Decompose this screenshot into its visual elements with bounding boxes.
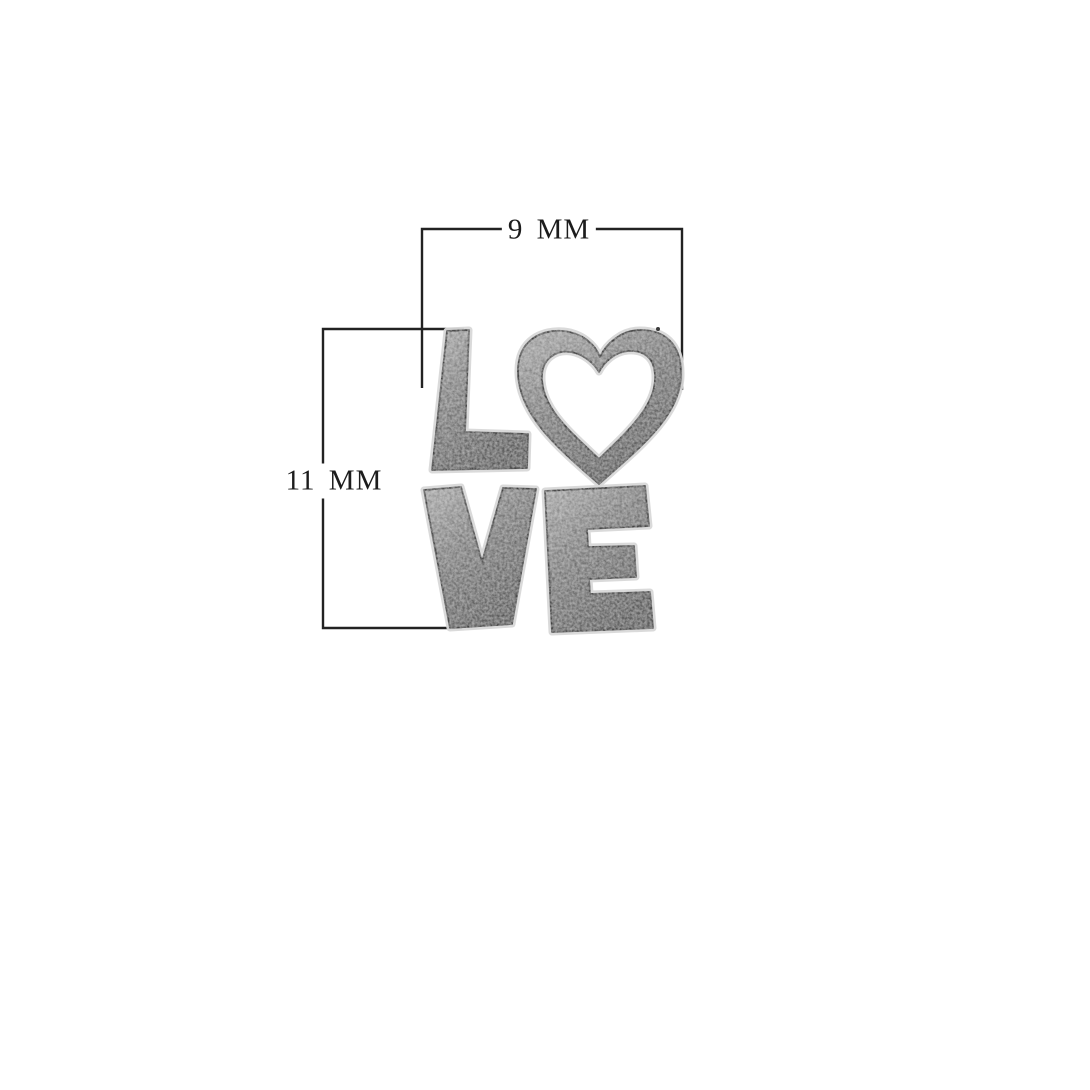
dimension-diagram — [0, 0, 1090, 1090]
photo-speck — [656, 327, 660, 331]
love-charm — [424, 327, 681, 632]
width-dimension-label: 9 MM — [502, 213, 596, 248]
charm-letter-l — [432, 330, 528, 470]
charm-letter-v — [424, 487, 536, 628]
height-dimension-label: 11 MM — [280, 464, 389, 499]
product-image: 9 MM 11 MM — [0, 0, 1090, 1090]
